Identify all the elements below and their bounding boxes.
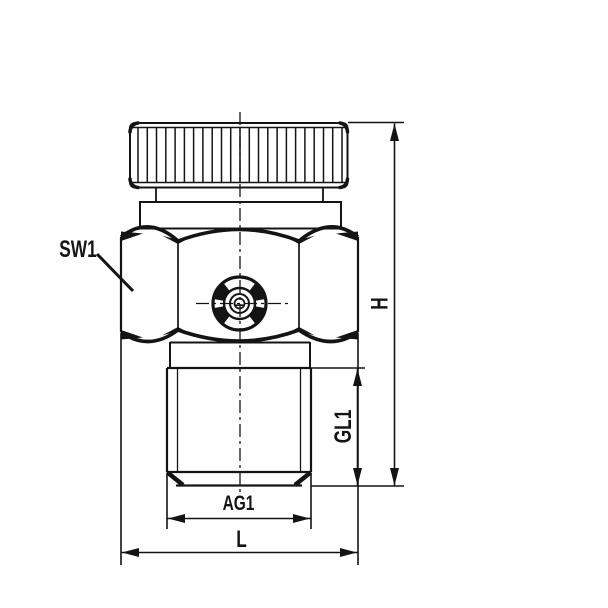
h-label: H [367, 297, 393, 309]
stud-chamfer-diagonals [168, 473, 311, 486]
valve-technical-drawing: SW1 H GL1 AG1 L [0, 0, 608, 608]
h-arrow-down [390, 468, 399, 486]
threaded-stud [167, 368, 311, 486]
l-label: L [236, 526, 247, 552]
gl1-label: GL1 [330, 409, 356, 443]
stud-outer-edges [167, 368, 311, 472]
h-arrow-up [390, 124, 399, 142]
knurl-lines [138, 128, 342, 183]
stud-thread-root-lines [178, 369, 301, 471]
ag1-label: AG1 [223, 490, 255, 514]
ag1-arrow-right [293, 514, 310, 523]
l-arrow-left [122, 548, 139, 557]
ag1-arrow-left [168, 514, 185, 523]
knurled-knob [130, 123, 348, 188]
sw1-leader-line [97, 254, 133, 291]
drawing-page: SW1 H GL1 AG1 L [0, 0, 608, 608]
sw1-label: SW1 [59, 236, 97, 262]
l-arrow-right [340, 548, 357, 557]
hex-facet-lines [178, 241, 299, 330]
